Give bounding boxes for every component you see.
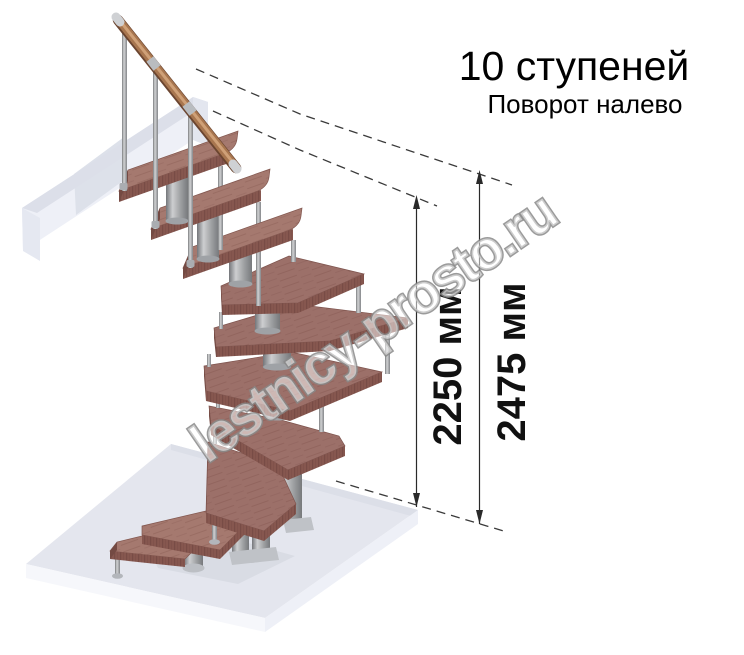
svg-text:2475 мм: 2475 мм	[490, 282, 534, 441]
svg-text:10 ступеней: 10 ступеней	[459, 43, 690, 89]
svg-text:Поворот налево: Поворот налево	[487, 89, 682, 119]
